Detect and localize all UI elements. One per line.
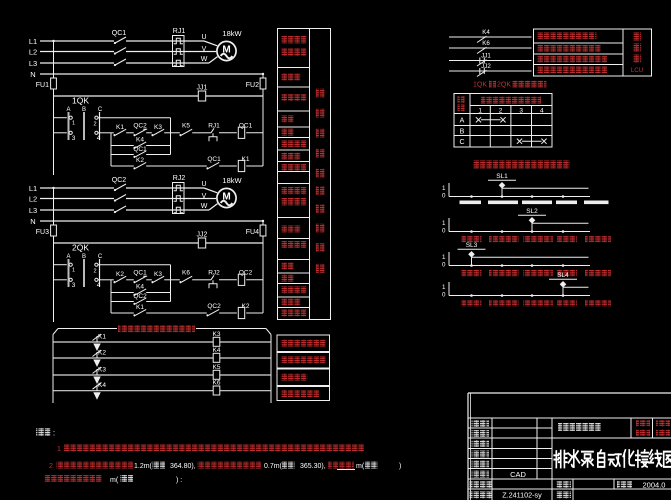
svg-text:365.30),: 365.30), [300, 463, 326, 470]
svg-text:18kW: 18kW [222, 176, 242, 185]
svg-text:2QK: 2QK [72, 243, 89, 253]
svg-text:1: 1 [57, 446, 61, 453]
svg-text:2: 2 [93, 122, 96, 128]
svg-text:K3: K3 [154, 271, 162, 278]
svg-text:SL4: SL4 [557, 272, 569, 279]
svg-text:K4: K4 [136, 137, 144, 144]
svg-text:QC1: QC1 [239, 123, 253, 130]
svg-text:W: W [201, 56, 208, 63]
svg-text:QC2: QC2 [112, 177, 127, 184]
svg-text:L1: L1 [29, 37, 37, 46]
svg-text:C: C [98, 107, 103, 113]
svg-text:JJ1: JJ1 [197, 85, 208, 92]
svg-text:FU2: FU2 [246, 82, 259, 89]
svg-text:JJ2: JJ2 [481, 63, 491, 70]
svg-text:FU1: FU1 [36, 82, 49, 89]
svg-text::: : [53, 429, 55, 438]
svg-text:K5: K5 [182, 123, 190, 130]
svg-text:SL1: SL1 [496, 173, 508, 180]
svg-text:K4: K4 [98, 382, 106, 389]
svg-text:4: 4 [97, 135, 101, 142]
svg-text:K2: K2 [136, 157, 144, 164]
svg-text:0: 0 [442, 193, 446, 200]
svg-text:K3: K3 [98, 367, 106, 374]
svg-text:2004.0: 2004.0 [643, 481, 666, 490]
svg-text:U: U [201, 34, 206, 41]
svg-text:1.2m(: 1.2m( [134, 463, 153, 470]
svg-text:K1: K1 [116, 124, 124, 131]
svg-text:K6: K6 [482, 40, 490, 47]
svg-text:K2: K2 [98, 350, 106, 357]
svg-text:JJ2: JJ2 [197, 232, 208, 239]
svg-text:1QK: 1QK [473, 82, 487, 89]
svg-text:K2: K2 [242, 303, 250, 310]
svg-text:1QK: 1QK [72, 96, 89, 106]
svg-text:LCU: LCU [631, 67, 643, 74]
svg-text:QC2: QC2 [133, 123, 147, 130]
svg-text:W: W [201, 203, 208, 210]
svg-text:U: U [201, 181, 206, 188]
svg-text:RJ1: RJ1 [173, 28, 186, 35]
svg-text:0: 0 [442, 262, 446, 269]
svg-text:L2: L2 [29, 195, 37, 204]
svg-text:N: N [30, 217, 35, 226]
svg-text:2: 2 [93, 269, 96, 275]
svg-text:1: 1 [72, 121, 75, 127]
svg-text:K3: K3 [154, 124, 162, 131]
svg-text:4: 4 [97, 282, 101, 289]
svg-text:C: C [98, 254, 103, 260]
svg-text:RJ2: RJ2 [173, 175, 186, 182]
svg-text:18kW: 18kW [222, 29, 242, 38]
svg-text:3: 3 [519, 107, 523, 114]
svg-text:L1: L1 [29, 184, 37, 193]
svg-text:364.80),: 364.80), [170, 463, 196, 470]
svg-text:C: C [459, 139, 464, 146]
svg-text:2: 2 [49, 463, 53, 470]
svg-text:SL2: SL2 [526, 208, 538, 215]
svg-text:QC2: QC2 [239, 270, 253, 277]
svg-text:m(: m( [356, 463, 365, 470]
svg-text:FU3: FU3 [36, 229, 49, 236]
svg-text:K4: K4 [482, 29, 490, 36]
svg-text:0.7m(: 0.7m( [264, 463, 283, 470]
svg-text:K1: K1 [136, 304, 144, 311]
svg-text:K1: K1 [242, 156, 250, 163]
svg-text:m(: m( [110, 477, 119, 484]
svg-text:FU4: FU4 [246, 229, 259, 236]
svg-text:Z.241102-sy: Z.241102-sy [502, 491, 542, 500]
svg-text:0: 0 [442, 292, 446, 299]
svg-text:N: N [30, 70, 35, 79]
svg-text:B: B [460, 128, 465, 135]
svg-text:QC1: QC1 [133, 270, 147, 277]
svg-text:V: V [202, 193, 207, 200]
svg-text:K1: K1 [98, 334, 106, 341]
svg-text:K6: K6 [182, 270, 190, 277]
svg-text:L3: L3 [29, 59, 37, 68]
svg-text:3: 3 [72, 282, 76, 289]
svg-text:K2: K2 [116, 271, 124, 278]
svg-text:1: 1 [442, 220, 446, 227]
svg-text:L3: L3 [29, 206, 37, 215]
svg-text:K4: K4 [136, 284, 144, 291]
svg-text:L2: L2 [29, 48, 37, 57]
svg-text:JJ1: JJ1 [481, 53, 491, 60]
svg-text:CAD: CAD [510, 470, 526, 479]
svg-text:V: V [202, 46, 207, 53]
svg-text:QC2: QC2 [207, 303, 221, 310]
svg-text:QC1: QC1 [112, 30, 127, 37]
svg-text:) :: ) : [176, 477, 182, 484]
svg-text:1: 1 [442, 185, 446, 192]
svg-text:): ) [399, 463, 401, 470]
svg-text:1: 1 [442, 254, 446, 261]
svg-text:A: A [460, 118, 465, 125]
svg-text:0: 0 [442, 228, 446, 235]
svg-text:2: 2 [499, 107, 503, 114]
svg-text:1: 1 [72, 268, 75, 274]
svg-text:2QK: 2QK [497, 82, 511, 89]
svg-text:SL3: SL3 [466, 242, 478, 249]
svg-text:1: 1 [442, 284, 446, 291]
svg-text:QC1: QC1 [207, 156, 221, 163]
svg-text:4: 4 [540, 107, 544, 114]
svg-text:1: 1 [478, 107, 482, 114]
svg-text:3: 3 [72, 135, 76, 142]
